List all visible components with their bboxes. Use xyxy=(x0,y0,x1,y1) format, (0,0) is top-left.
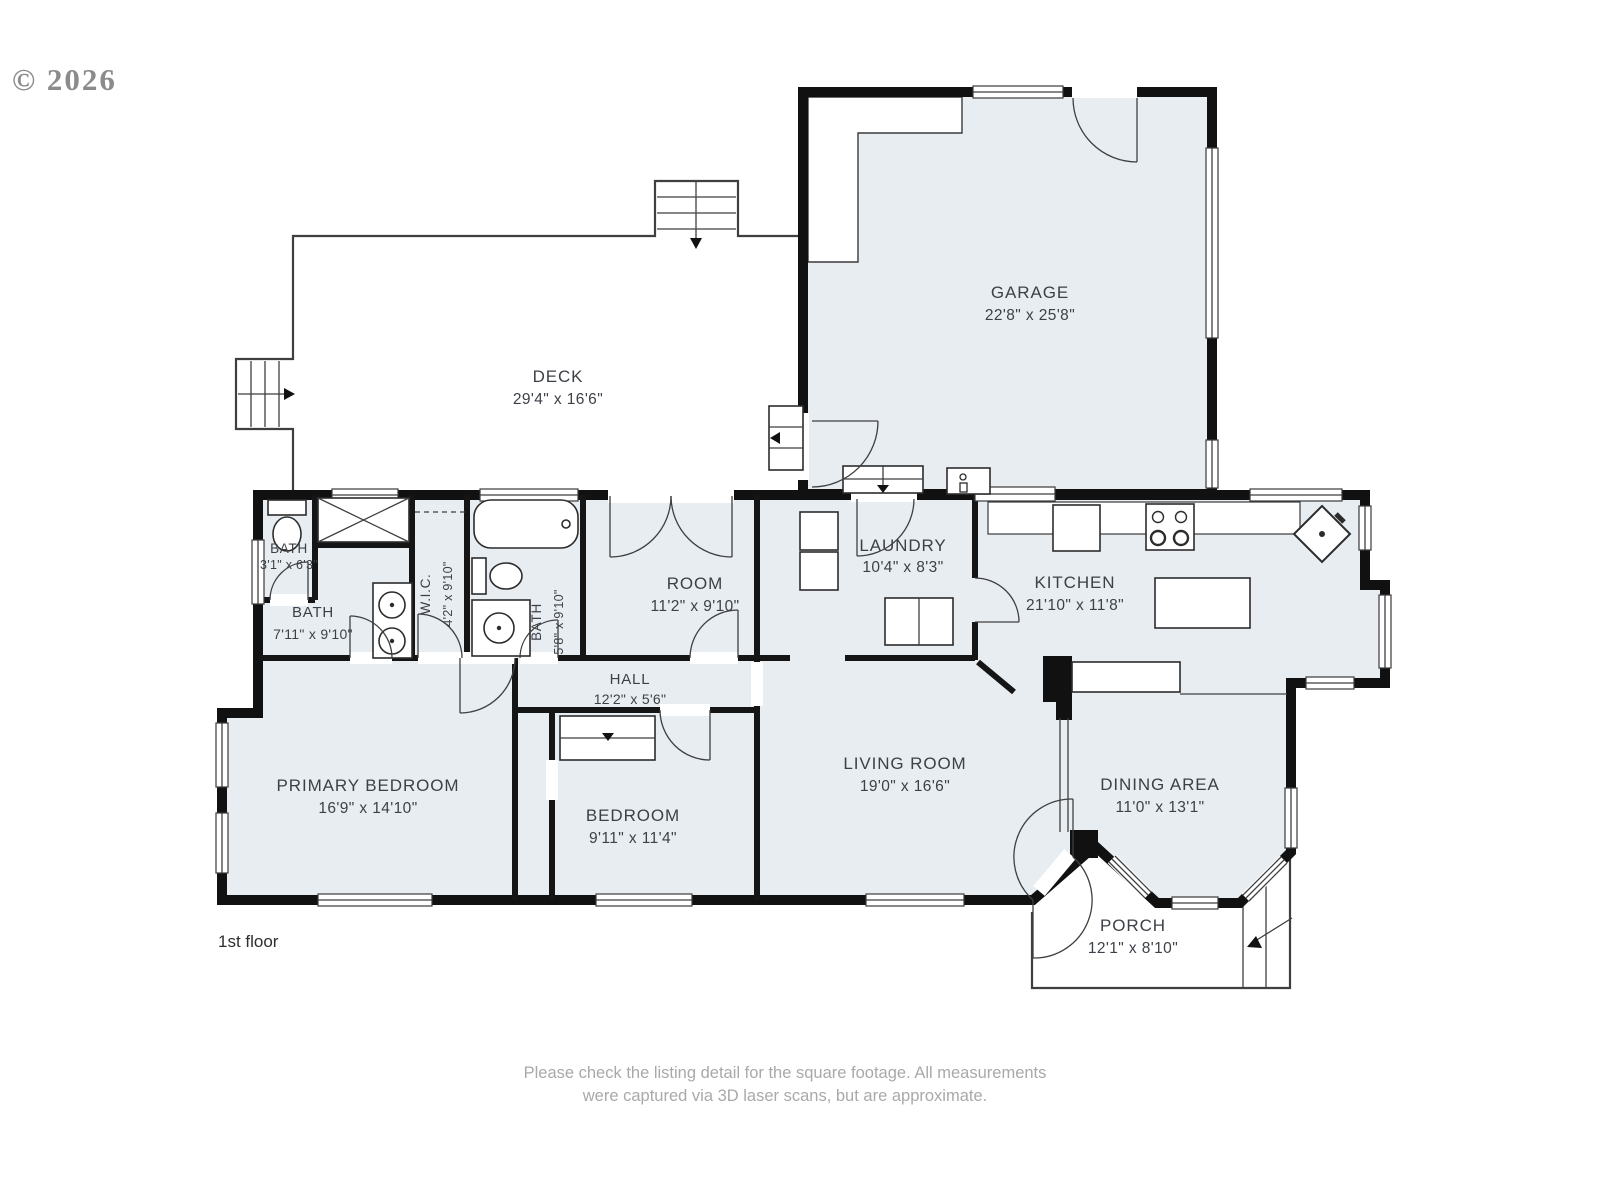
living-room-label: LIVING ROOM xyxy=(843,754,966,773)
disclaimer-line-1: Please check the listing detail for the … xyxy=(0,1062,1570,1085)
porch-dims: 12'1" x 8'10" xyxy=(1088,940,1178,957)
bath-ensuite-dims: 5'8" x 9'10" xyxy=(552,589,566,654)
deck-dims: 29'4" x 16'6" xyxy=(513,391,603,408)
bath-small-dims: 3'1" x 6'3" xyxy=(260,558,318,572)
deck-label: DECK xyxy=(533,367,584,386)
wic-label: W.I.C. xyxy=(418,574,433,615)
room-label: ROOM xyxy=(667,574,723,593)
kitchen-dining-pillar xyxy=(1043,656,1072,702)
room-dims: 11'2" x 9'10" xyxy=(650,598,739,615)
living-room-dims: 19'0" x 16'6" xyxy=(860,778,950,795)
bath-dims: 7'11" x 9'10" xyxy=(273,626,353,642)
dining-area-dims: 11'0" x 13'1" xyxy=(1115,799,1204,816)
disclaimer-text: Please check the listing detail for the … xyxy=(0,1062,1570,1108)
garage-dims: 22'8" x 25'8" xyxy=(985,307,1075,324)
copyright-watermark: © 2026 xyxy=(12,62,117,98)
bedroom-dims: 9'11" x 11'4" xyxy=(589,830,677,847)
bath-double-vanity xyxy=(373,583,412,658)
disclaimer-line-2: were captured via 3D laser scans, but ar… xyxy=(0,1085,1570,1108)
primary-bedroom-label: PRIMARY BEDROOM xyxy=(277,776,460,795)
garage-label: GARAGE xyxy=(991,283,1069,302)
shower-stall xyxy=(318,498,409,542)
hall-label: HALL xyxy=(610,671,651,688)
primary-bedroom-dims: 16'9" x 14'10" xyxy=(318,800,417,817)
bath-label: BATH xyxy=(292,604,334,621)
bedroom-label: BEDROOM xyxy=(586,806,680,825)
kitchen-label: KITCHEN xyxy=(1035,573,1116,592)
floorplan-page: © 2026 xyxy=(0,0,1600,1200)
porch-label: PORCH xyxy=(1100,916,1166,935)
wic-dims: 4'2" x 9'10" xyxy=(441,561,455,626)
hall-closet xyxy=(560,716,655,760)
dining-area-label: DINING AREA xyxy=(1100,775,1219,794)
deck-outline xyxy=(236,181,806,492)
bath-small-label: BATH xyxy=(270,541,308,556)
laundry-dims: 10'4" x 8'3" xyxy=(862,559,943,576)
kitchen-dims: 21'10" x 11'8" xyxy=(1026,597,1124,614)
bath-ensuite-label: BATH xyxy=(529,603,544,641)
floorplan-drawing: DECK 29'4" x 16'6" GARAGE 22'8" x 25'8" … xyxy=(0,0,1600,1200)
hall-dims: 12'2" x 5'6" xyxy=(594,691,667,707)
laundry-label: LAUNDRY xyxy=(859,536,946,555)
floor-name: 1st floor xyxy=(218,932,278,952)
